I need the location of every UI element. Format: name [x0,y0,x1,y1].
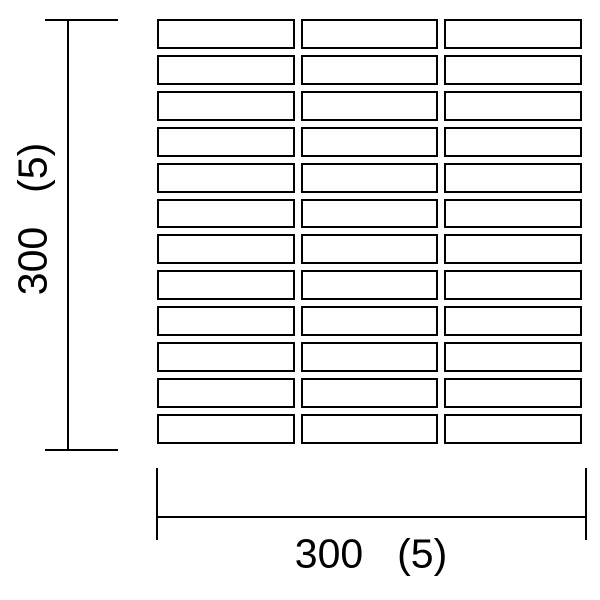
vertical-dimension-bottom-tick [45,449,118,451]
tile-cell [301,378,439,408]
tile-cell [157,234,295,264]
tile-cell [301,306,439,336]
tile-cell [157,55,295,85]
tile-cell [157,378,295,408]
horizontal-dimension-left-tick [156,468,158,540]
vertical-dimension-line [67,19,69,451]
tile-cell [301,91,439,121]
tile-cell [157,306,295,336]
tile-cell [444,234,582,264]
tile-cell [157,19,295,49]
tile-grid [157,19,582,444]
vertical-dimension-label: 300 (5) [13,143,54,295]
tile-cell [444,163,582,193]
tile-cell [444,55,582,85]
tile-cell [301,234,439,264]
tile-cell [157,270,295,300]
horizontal-dimension-line [157,516,587,518]
vertical-dimension-top-tick [45,19,118,21]
tile-cell [444,199,582,229]
tile-cell [444,19,582,49]
tile-cell [444,414,582,444]
horizontal-dimension-right-tick [585,468,587,540]
tile-cell [301,55,439,85]
tile-cell [157,127,295,157]
tile-cell [444,342,582,372]
tile-cell [301,270,439,300]
tile-cell [157,91,295,121]
horizontal-dimension-label: 300 (5) [295,534,447,575]
tile-cell [157,414,295,444]
tile-cell [301,163,439,193]
tile-cell [301,414,439,444]
tile-cell [444,127,582,157]
tile-cell [301,19,439,49]
tile-cell [444,91,582,121]
tile-cell [157,163,295,193]
tile-cell [444,270,582,300]
tile-cell [444,306,582,336]
tile-cell [157,342,295,372]
tile-cell [157,199,295,229]
drawing-canvas: 300 (5) 300 (5) [0,0,600,600]
tile-cell [444,378,582,408]
tile-cell [301,127,439,157]
tile-cell [301,199,439,229]
tile-cell [301,342,439,372]
